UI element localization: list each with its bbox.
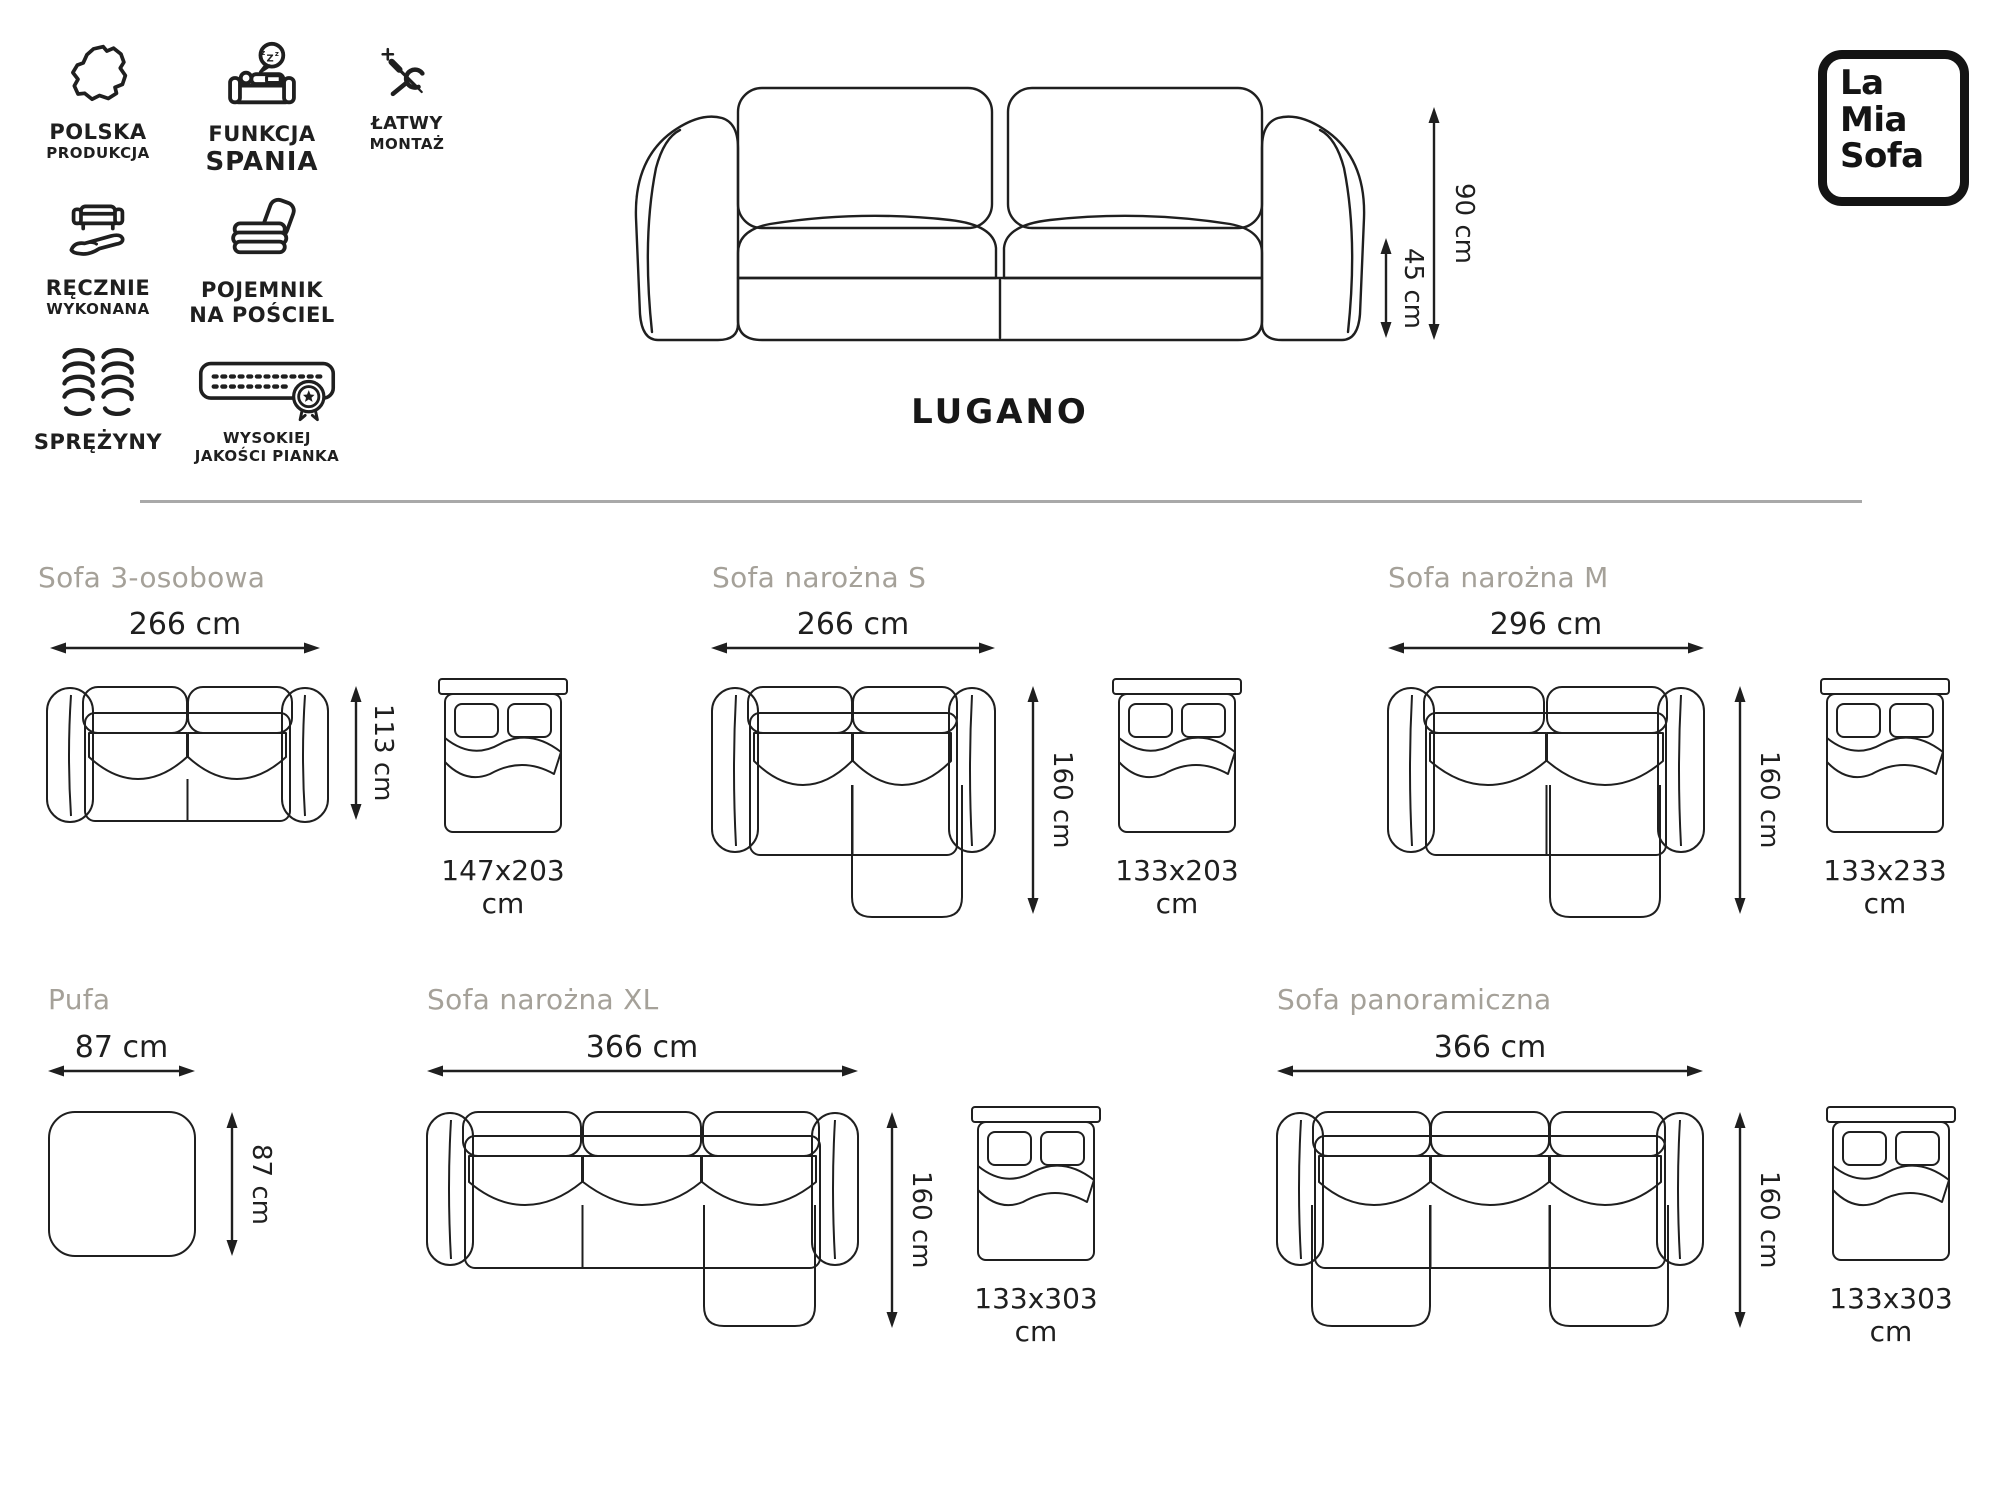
badge-label: WYSOKIEJ <box>223 430 311 447</box>
logo-line: La <box>1840 65 1960 102</box>
logo-line: Mia <box>1840 102 1960 139</box>
badge-polska-produkcja: POLSKA PRODUKCJA <box>38 40 158 163</box>
width-arrow <box>711 640 995 656</box>
svg-text:Z: Z <box>267 53 274 64</box>
bed-icon <box>1826 1106 1956 1264</box>
badge-pojemnik-na-posciel: POJEMNIK NA POŚCIEL <box>182 196 342 328</box>
variant-depth-label: 87 cm <box>246 1112 276 1256</box>
variant-width-label: 266 cm <box>718 607 988 642</box>
depth-arrow <box>224 1112 240 1256</box>
depth-arrow <box>348 686 364 820</box>
badge-sublabel: NA POŚCIEL <box>189 302 334 328</box>
badge-label: ŁATWY <box>371 114 443 135</box>
handmade-icon <box>58 196 138 270</box>
hero-sofa-drawing <box>620 68 1380 350</box>
springs-icon <box>55 346 141 424</box>
variant-depth-label: 160 cm <box>906 1112 936 1328</box>
foam-quality-icon <box>195 352 339 424</box>
brand-logo: La Mia Sofa <box>1818 50 1969 206</box>
depth-arrow <box>1025 686 1041 914</box>
variant-width-label: 87 cm <box>48 1030 195 1065</box>
badge-funkcja-spania: z Z z FUNKCJA SPANIA <box>192 40 332 179</box>
badge-recznie-wykonana: RĘCZNIE WYKONANA <box>28 196 168 319</box>
sofa-top-view <box>45 685 330 825</box>
badge-label: SPRĘŻYNY <box>34 430 162 454</box>
width-arrow <box>1388 640 1704 656</box>
seat-height-arrow <box>1378 238 1394 338</box>
width-arrow <box>1277 1063 1703 1079</box>
width-arrow <box>48 1063 195 1079</box>
badge-sublabel: WYKONANA <box>46 300 149 319</box>
badge-wysokiej-jakosci-pianka: WYSOKIEJ JAKOŚCI PIANKA <box>172 352 362 466</box>
bed-size-label: 133x233 cm <box>1805 854 1965 920</box>
variant-title: Sofa narożna M <box>1388 561 1609 594</box>
badge-label: POLSKA <box>49 120 146 144</box>
width-arrow <box>50 640 320 656</box>
logo-line: Sofa <box>1840 138 1960 175</box>
badge-sublabel: MONTAŻ <box>370 135 445 154</box>
sofa-top-view-corner <box>710 685 997 921</box>
section-divider <box>140 500 1862 503</box>
width-arrow <box>427 1063 858 1079</box>
sofa-top-view-corner <box>1386 685 1706 921</box>
variant-title: Sofa narożna XL <box>427 983 659 1016</box>
variant-title: Sofa 3-osobowa <box>38 561 265 594</box>
variant-width-label: 296 cm <box>1411 607 1681 642</box>
sofa-top-view-corner-xl <box>425 1110 860 1328</box>
badge-sublabel: PRODUKCJA <box>46 144 150 163</box>
depth-arrow <box>1732 1112 1748 1328</box>
depth-arrow <box>1732 686 1748 914</box>
variant-depth-label: 160 cm <box>1754 686 1784 914</box>
bed-size-label: 147x203 cm <box>423 854 583 920</box>
svg-text:z: z <box>261 49 265 57</box>
badge-label: POJEMNIK <box>201 278 323 302</box>
badge-label: RĘCZNIE <box>46 276 150 300</box>
product-name: LUGANO <box>850 392 1150 432</box>
tools-icon <box>375 44 439 108</box>
bed-size-label: 133x303 cm <box>956 1282 1116 1348</box>
variant-title: Sofa narożna S <box>712 561 926 594</box>
depth-arrow <box>884 1112 900 1328</box>
variant-width-label: 366 cm <box>1355 1030 1625 1065</box>
sleep-function-icon: z Z z <box>224 40 300 116</box>
variant-depth-label: 113 cm <box>368 686 398 820</box>
height-label: 90 cm <box>1449 107 1479 340</box>
variant-title: Sofa panoramiczna <box>1277 983 1551 1016</box>
bed-size-label: 133x303 cm <box>1811 1282 1971 1348</box>
variant-depth-label: 160 cm <box>1047 686 1077 914</box>
badge-sublabel: SPANIA <box>205 146 318 179</box>
sofa-top-view-panoramic <box>1275 1110 1705 1328</box>
bed-icon <box>971 1106 1101 1264</box>
height-arrow <box>1426 107 1442 340</box>
bed-icon <box>1112 678 1242 836</box>
svg-text:z: z <box>275 50 279 58</box>
badge-sublabel: JAKOŚCI PIANKA <box>195 447 339 466</box>
bed-icon <box>1820 678 1950 836</box>
variant-title: Pufa <box>48 983 110 1016</box>
variant-width-label: 266 cm <box>50 607 320 642</box>
bed-icon <box>438 678 568 836</box>
variant-width-label: 366 cm <box>507 1030 777 1065</box>
variant-depth-label: 160 cm <box>1754 1112 1784 1328</box>
pouf-top-view <box>47 1110 197 1258</box>
badge-label: FUNKCJA <box>208 122 315 146</box>
poland-map-icon <box>61 40 135 114</box>
badge-latwy-montaz: ŁATWY MONTAŻ <box>352 44 462 153</box>
badge-sprezyny: SPRĘŻYNY <box>38 346 158 454</box>
product-spec-sheet: POLSKA PRODUKCJA z Z z FUNKCJA SPANIA <box>0 0 2000 1500</box>
seat-height-label: 45 cm <box>1398 238 1428 338</box>
bed-size-label: 133x203 cm <box>1097 854 1257 920</box>
bedding-container-icon <box>224 196 300 272</box>
